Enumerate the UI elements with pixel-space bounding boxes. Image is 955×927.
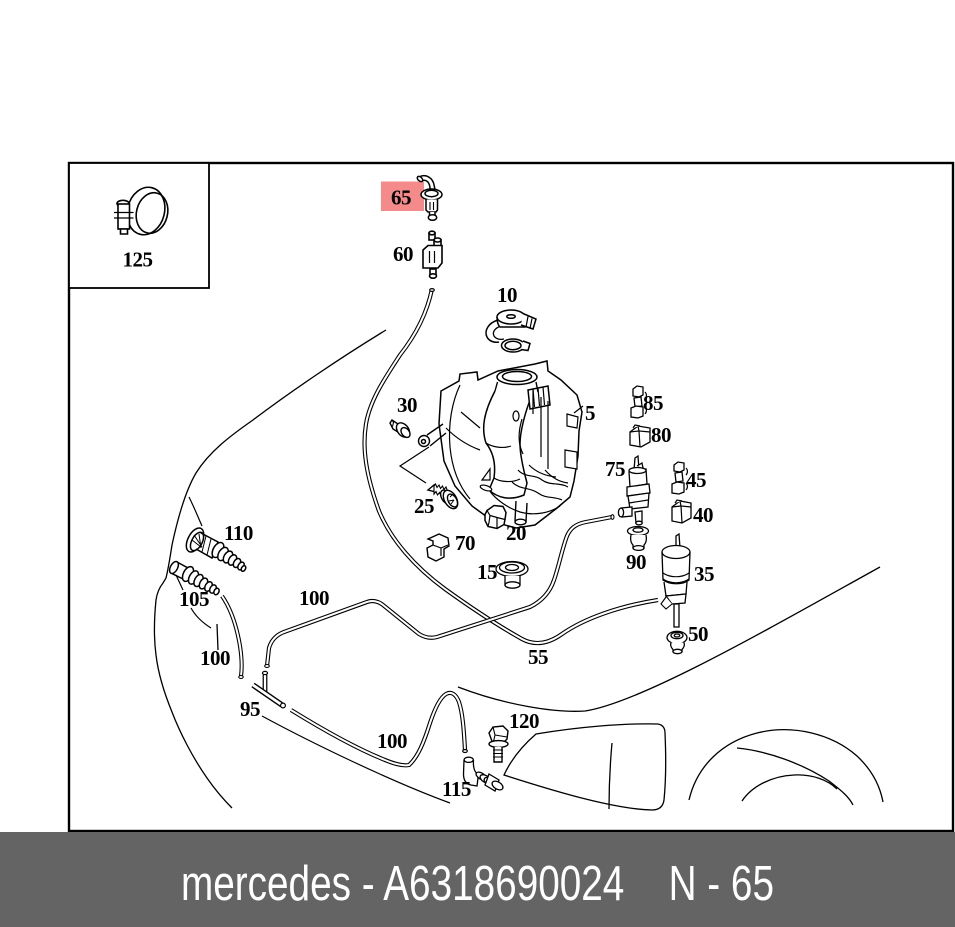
svg-text:20: 20 <box>506 521 526 545</box>
svg-text:30: 30 <box>397 393 417 417</box>
svg-text:40: 40 <box>693 503 713 527</box>
svg-text:120: 120 <box>509 709 539 733</box>
svg-text:110: 110 <box>224 521 253 545</box>
svg-text:25: 25 <box>414 494 434 518</box>
svg-text:80: 80 <box>651 423 671 447</box>
svg-text:5: 5 <box>585 401 595 425</box>
svg-text:75: 75 <box>605 457 625 481</box>
svg-text:100: 100 <box>299 586 329 610</box>
svg-text:125: 125 <box>123 248 153 272</box>
svg-text:55: 55 <box>528 645 548 669</box>
svg-text:115: 115 <box>442 777 471 801</box>
svg-text:65: 65 <box>391 186 411 210</box>
svg-text:60: 60 <box>393 242 413 266</box>
svg-text:95: 95 <box>240 697 260 721</box>
svg-text:15: 15 <box>477 560 497 584</box>
svg-text:10: 10 <box>497 283 517 307</box>
svg-text:105: 105 <box>179 587 209 611</box>
svg-text:100: 100 <box>377 729 407 753</box>
svg-text:90: 90 <box>626 550 646 574</box>
svg-text:35: 35 <box>694 562 714 586</box>
svg-text:85: 85 <box>643 391 663 415</box>
svg-text:70: 70 <box>455 531 475 555</box>
svg-text:100: 100 <box>200 646 230 670</box>
svg-text:45: 45 <box>686 468 706 492</box>
svg-text:50: 50 <box>688 622 708 646</box>
